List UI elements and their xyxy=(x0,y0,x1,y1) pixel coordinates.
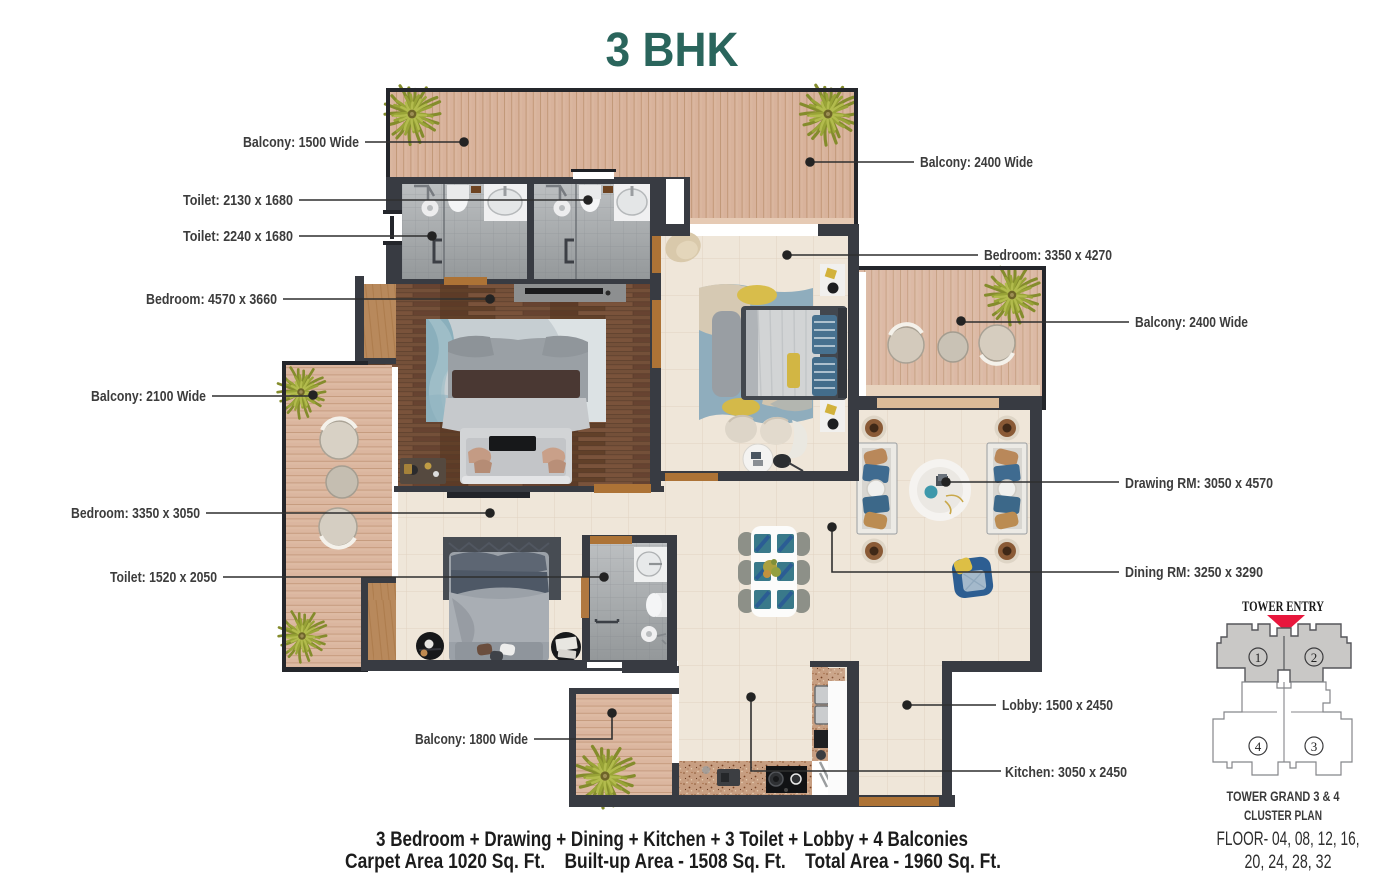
svg-text:3: 3 xyxy=(1311,739,1318,754)
svg-text:Toilet: 2130 x 1680: Toilet: 2130 x 1680 xyxy=(183,192,293,209)
svg-text:Carpet Area 1020 Sq. Ft. Bu: Carpet Area 1020 Sq. Ft. Built-up Area -… xyxy=(345,849,1001,873)
svg-text:Balcony: 1800 Wide: Balcony: 1800 Wide xyxy=(415,731,528,748)
svg-text:1: 1 xyxy=(1255,650,1262,665)
svg-text:CLUSTER PLAN: CLUSTER PLAN xyxy=(1244,808,1322,823)
svg-text:Balcony: 2400 Wide: Balcony: 2400 Wide xyxy=(1135,314,1248,331)
svg-text:Kitchen: 3050 x 2450: Kitchen: 3050 x 2450 xyxy=(1005,764,1127,781)
svg-text:Bedroom: 4570 x 3660: Bedroom: 4570 x 3660 xyxy=(146,291,277,308)
svg-text:FLOOR- 04, 08, 12, 16,: FLOOR- 04, 08, 12, 16, xyxy=(1217,829,1360,850)
svg-text:Balcony: 2100 Wide: Balcony: 2100 Wide xyxy=(91,388,206,405)
svg-text:Lobby: 1500 x 2450: Lobby: 1500 x 2450 xyxy=(1002,697,1113,714)
svg-text:Dining RM: 3250 x 3290: Dining RM: 3250 x 3290 xyxy=(1125,564,1263,581)
svg-text:20, 24, 28, 32: 20, 24, 28, 32 xyxy=(1245,852,1332,873)
svg-text:2: 2 xyxy=(1311,650,1318,665)
svg-text:3 BHK: 3 BHK xyxy=(606,24,739,77)
svg-text:4: 4 xyxy=(1255,739,1262,754)
svg-text:Drawing RM: 3050 x 4570: Drawing RM: 3050 x 4570 xyxy=(1125,475,1273,492)
svg-text:Toilet: 2240 x 1680: Toilet: 2240 x 1680 xyxy=(183,228,293,245)
svg-text:Balcony: 2400 Wide: Balcony: 2400 Wide xyxy=(920,154,1033,171)
svg-text:Toilet: 1520 x 2050: Toilet: 1520 x 2050 xyxy=(110,569,217,586)
svg-text:Bedroom: 3350 x 4270: Bedroom: 3350 x 4270 xyxy=(984,247,1112,264)
svg-text:3 Bedroom + Drawing + Dining +: 3 Bedroom + Drawing + Dining + Kitchen +… xyxy=(376,827,968,851)
svg-text:Balcony: 1500 Wide: Balcony: 1500 Wide xyxy=(243,134,359,151)
svg-text:Bedroom: 3350 x 3050: Bedroom: 3350 x 3050 xyxy=(71,505,200,522)
svg-text:TOWER ENTRY: TOWER ENTRY xyxy=(1242,599,1324,615)
svg-text:TOWER GRAND 3 & 4: TOWER GRAND 3 & 4 xyxy=(1227,789,1340,804)
